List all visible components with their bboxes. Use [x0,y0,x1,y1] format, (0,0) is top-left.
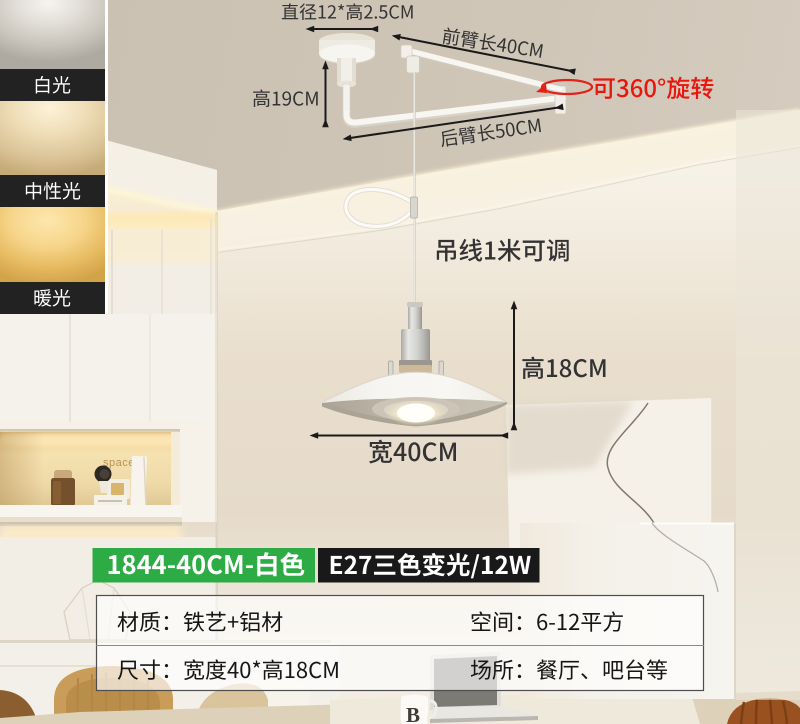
svg-text:B: B [406,703,420,724]
